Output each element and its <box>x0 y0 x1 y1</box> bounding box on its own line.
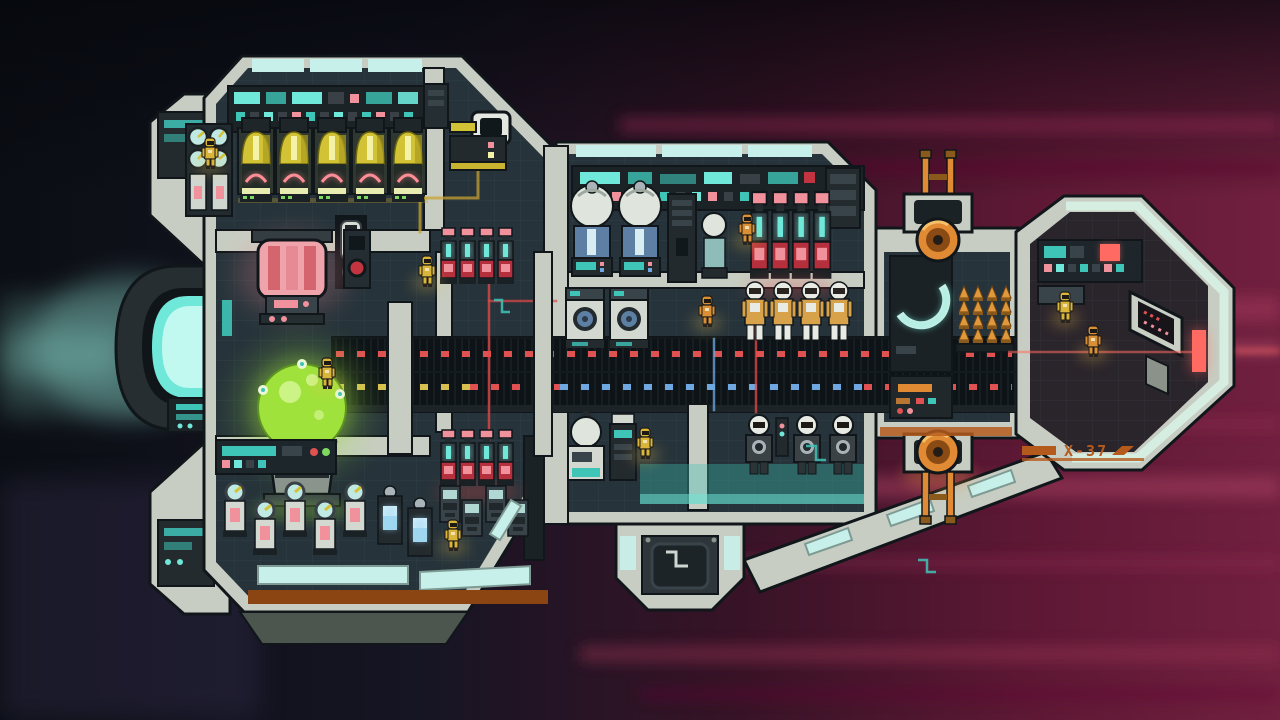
ceiling-window <box>252 59 304 72</box>
oxygen-tank[interactable] <box>571 181 613 276</box>
gauge-canister[interactable] <box>313 501 337 555</box>
recycler-unit[interactable] <box>610 288 648 348</box>
recycler-unit[interactable] <box>566 288 604 348</box>
gauge-canister[interactable] <box>253 501 277 555</box>
rack-console[interactable] <box>776 418 788 456</box>
gauge-canister[interactable] <box>343 483 367 537</box>
oxygen-tank[interactable] <box>619 181 661 276</box>
med-cabinet[interactable] <box>610 414 636 480</box>
wall-shelf <box>424 84 448 128</box>
hull-stripe <box>880 427 1012 436</box>
wall-port-device[interactable] <box>344 230 370 288</box>
tall-locker[interactable] <box>668 194 696 282</box>
rust-stripe <box>248 590 548 604</box>
cargo-console[interactable] <box>216 440 336 474</box>
storage-locker[interactable] <box>440 486 460 522</box>
generator[interactable] <box>390 118 426 202</box>
cockpit-console-bank[interactable] <box>1038 240 1142 282</box>
generator[interactable] <box>238 118 274 202</box>
small-tank[interactable] <box>702 213 727 278</box>
ship-hull-label: X-37 <box>1064 442 1108 460</box>
weapons-console[interactable] <box>890 376 952 418</box>
generator[interactable] <box>314 118 350 202</box>
starship-scene: X-37 <box>0 0 1280 720</box>
generator[interactable] <box>276 118 312 202</box>
wall-light <box>222 300 232 336</box>
gauge-canister[interactable] <box>283 483 307 537</box>
generator[interactable] <box>352 118 388 202</box>
gauge-canister[interactable] <box>223 483 247 537</box>
storage-locker[interactable] <box>462 500 482 536</box>
shield-generator[interactable] <box>890 256 952 372</box>
